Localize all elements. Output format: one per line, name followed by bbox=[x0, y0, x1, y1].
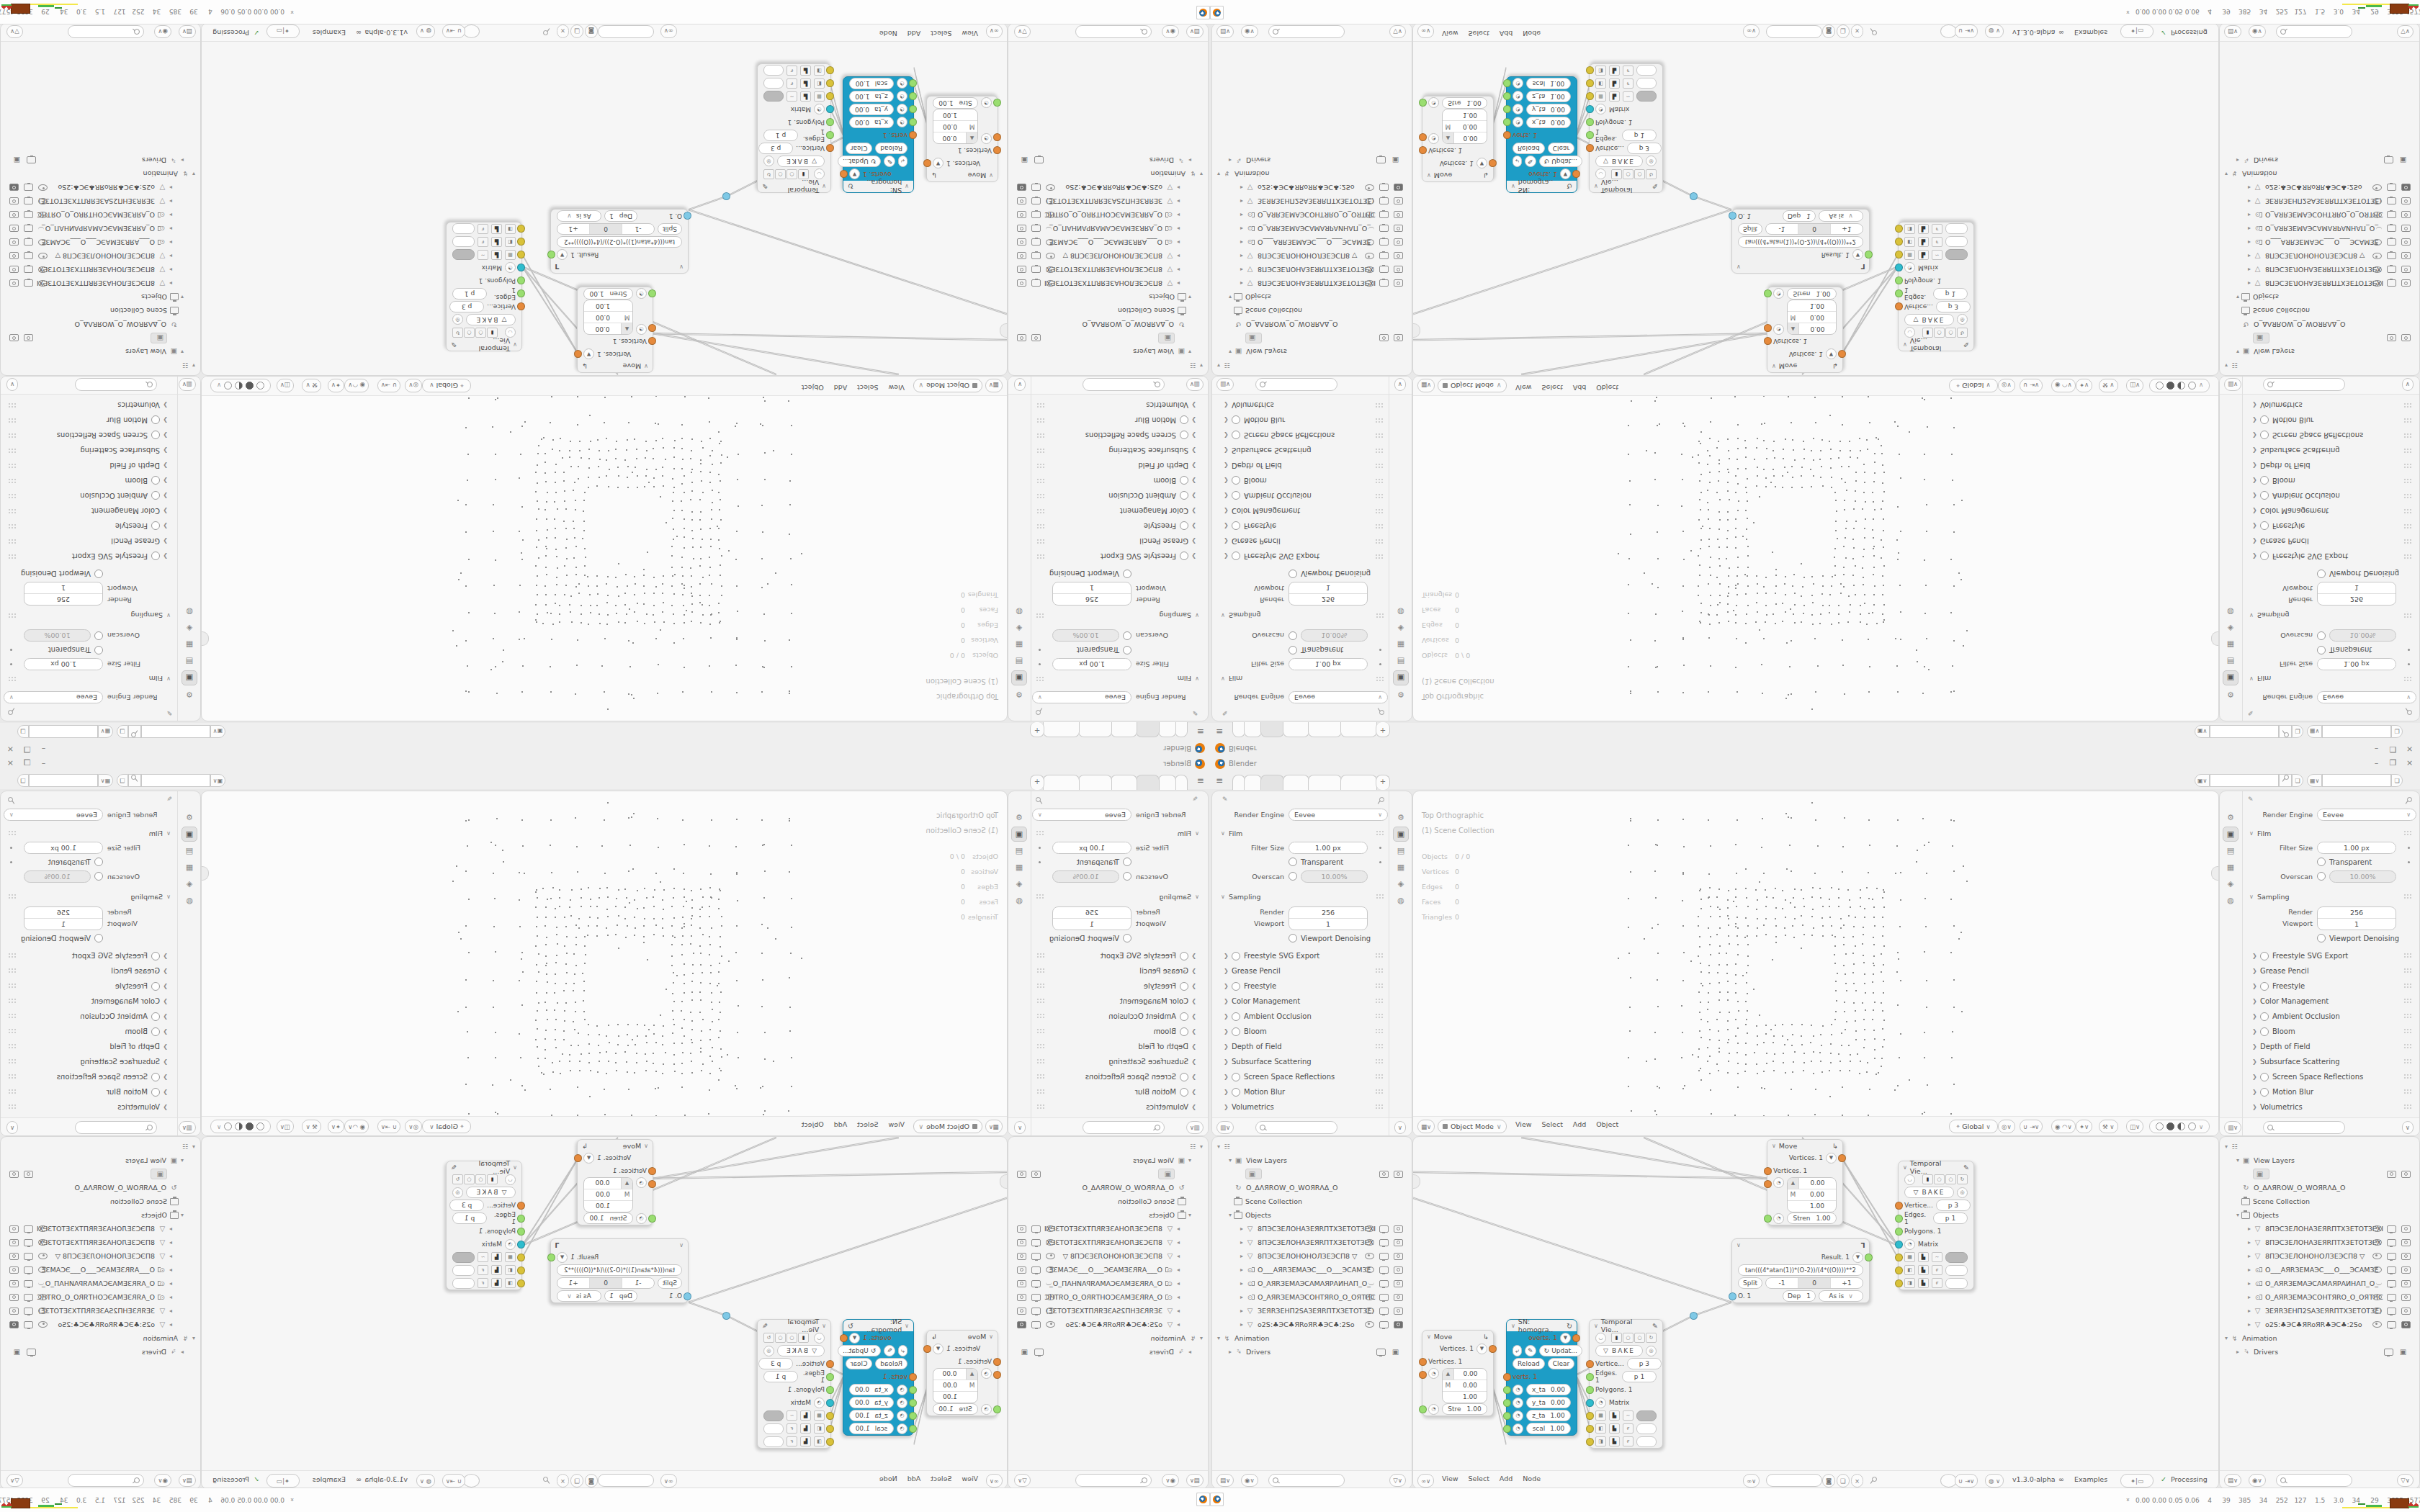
outliner-row[interactable]: Scene Collection bbox=[4, 304, 197, 318]
render-visibility-icon[interactable] bbox=[1017, 212, 1026, 219]
viewport-visibility-icon[interactable] bbox=[2387, 266, 2396, 274]
scene-icon[interactable]: ◈ bbox=[1393, 876, 1409, 891]
viewport-visibility-icon[interactable] bbox=[1379, 1239, 1389, 1246]
menu-item[interactable]: Add bbox=[907, 30, 920, 37]
text-field[interactable] bbox=[1945, 1265, 1968, 1276]
sampling-fields[interactable]: 256 1 bbox=[1289, 906, 1368, 930]
mode-dropdown[interactable]: Object Mode∨ bbox=[913, 1120, 982, 1133]
outliner-row[interactable]: ▸O_АЯRЗЕМАЭСАМАЯРАИНАП_O_ bbox=[1011, 1277, 1205, 1290]
property-section[interactable]: ❯Depth of Field bbox=[1029, 458, 1205, 473]
property-section[interactable]: ❯Grease Pencil bbox=[1215, 963, 1391, 978]
search-field[interactable] bbox=[1075, 25, 1152, 38]
property-section[interactable]: ❯Ambient Occlusion bbox=[1029, 488, 1205, 503]
minimize-button[interactable]: – bbox=[2372, 758, 2381, 768]
viewport-3d[interactable]: Top Orthographic (1) Scene Collection Ob… bbox=[1412, 376, 2219, 721]
search-field[interactable] bbox=[2276, 1474, 2352, 1487]
outliner-row[interactable]: ▸O___АЯRЗЕМАЭС___O___ЭСАМЗЕ bbox=[2223, 235, 2416, 249]
render-visibility-icon[interactable] bbox=[2401, 266, 2411, 274]
overscan-checkbox[interactable] bbox=[1289, 631, 1297, 640]
render-engine-dropdown[interactable]: Eevee∨ bbox=[1032, 809, 1131, 821]
render-engine-dropdown[interactable]: Eevee∨ bbox=[1289, 809, 1388, 821]
outliner-row[interactable]: ▸ЗЕЯRЗЕНП2SАЗЕЯRПТХЗЕТОТЗЕ) bbox=[1215, 194, 1409, 208]
node-formula[interactable]: ∨⅂ Result. 1▼ tan(((4*atan(1))*(O-2))/(4… bbox=[1731, 209, 1870, 274]
hide-eye-icon[interactable] bbox=[2372, 280, 2382, 287]
node-sn-homography[interactable]: ∨SN: homogra..↻ overts. 1▼ ⤶✎ ↻Updat... … bbox=[843, 76, 914, 193]
filter-size-field[interactable]: 1.00 px bbox=[24, 659, 103, 671]
examples-menu[interactable]: Examples bbox=[313, 1475, 346, 1483]
property-section[interactable]: ❯Depth of Field bbox=[1029, 1039, 1205, 1054]
render-icon[interactable]: ▣ bbox=[1393, 827, 1409, 842]
filter-visibility-icon[interactable]: ◉∨ bbox=[1162, 1474, 1179, 1487]
outliner-row[interactable]: ▾ bbox=[1011, 1140, 1205, 1153]
output-icon[interactable]: ▤ bbox=[181, 654, 197, 669]
property-section[interactable]: ❯Color Management bbox=[1215, 503, 1391, 518]
hide-eye-icon[interactable] bbox=[38, 184, 48, 191]
overlay-dropdown[interactable]: ◍ ∨ bbox=[416, 24, 435, 38]
workspace-tab[interactable] bbox=[1158, 775, 1176, 790]
viewport-denoising-checkbox[interactable] bbox=[1289, 934, 1297, 942]
property-section[interactable]: ❯Freestyle SVG Export bbox=[1215, 549, 1391, 564]
hide-eye-icon[interactable] bbox=[38, 1239, 48, 1246]
overscan-field[interactable]: 10.00% bbox=[1052, 630, 1119, 642]
node-move-upper[interactable]: ∨Move↳ Vertices. 1▼ Vertices. 1 ◔ ▲0.00 … bbox=[577, 1139, 653, 1225]
filter-visibility-icon[interactable]: ◉∨ bbox=[154, 25, 171, 38]
orientation-dropdown[interactable]: ⌖ Global∨ bbox=[1949, 379, 1998, 392]
new-viewlayer-button[interactable]: ❏ bbox=[17, 725, 28, 738]
outliner-row[interactable]: ▾View Layers bbox=[2223, 345, 2416, 359]
workspace-tab[interactable] bbox=[1043, 722, 1080, 737]
viewport-visibility-icon[interactable] bbox=[24, 198, 33, 205]
gizmo-dropdown[interactable]: ✦∨ bbox=[2076, 379, 2092, 392]
property-section[interactable]: ❯Depth of Field bbox=[2244, 458, 2419, 473]
property-section[interactable]: ❯Freestyle bbox=[1, 518, 176, 534]
outliner-row[interactable]: ▸8ПЭСЗЕЛОНАЗЕЯRПТХЗЕТОТЗЕХ bbox=[4, 263, 197, 276]
pin-icon[interactable] bbox=[1870, 1476, 1877, 1483]
outliner-row[interactable]: Scene Collection bbox=[2223, 1194, 2416, 1208]
snap-group[interactable]: ∪ ⇥∨ bbox=[377, 1120, 400, 1133]
viewlayer-icon[interactable]: ▦ bbox=[2223, 860, 2238, 875]
property-section[interactable]: ❯Freestyle SVG Export bbox=[1029, 948, 1205, 963]
node-tree-field[interactable] bbox=[598, 1474, 654, 1487]
bake-button[interactable]: ▽BAKE bbox=[1904, 1187, 1954, 1198]
xray-toggle[interactable]: ◫∨ bbox=[2126, 1120, 2143, 1133]
outliner-row[interactable]: ▸O_АЯRЗЕМАЭСОНТЯRО_O_ОЯТНС bbox=[2223, 208, 2416, 222]
outliner-row[interactable]: ▸ЗЕЯRЗЕНП2SАЗЕЯRПТХЗЕТОТЗЕ) bbox=[1215, 1304, 1409, 1318]
restore-button[interactable]: ❐ bbox=[22, 758, 32, 768]
viewport-visibility-icon[interactable] bbox=[1031, 1308, 1041, 1315]
outliner-row[interactable]: O_ΔΛЯROW_O_WOЯRΛΔ_O bbox=[2223, 1181, 2416, 1194]
overscan-field[interactable]: 10.00% bbox=[24, 630, 91, 642]
outliner-row[interactable]: ▸Drivers▣ bbox=[4, 1345, 197, 1359]
filter-size-field[interactable]: 1.00 px bbox=[1289, 842, 1368, 854]
hide-eye-icon[interactable] bbox=[2372, 212, 2382, 218]
shading-mode-group[interactable]: ∨ bbox=[210, 379, 271, 392]
render-visibility-icon[interactable] bbox=[2401, 1294, 2411, 1301]
viewport-denoising-checkbox[interactable] bbox=[1123, 934, 1131, 942]
outliner-row[interactable]: ▸ЗЕЯRЗЕНП2SАЗЕЯRПТХЗЕТОТЗЕ) bbox=[1011, 1304, 1205, 1318]
output-icon[interactable]: ▤ bbox=[1393, 654, 1409, 669]
render-visibility-icon[interactable] bbox=[9, 253, 19, 260]
node-temporal-viewer-right[interactable]: ∨Temporal Vie...✎ ◡ ▮○ ○↻ ▽BAKE ◎ Vertic… bbox=[446, 1161, 522, 1290]
outliner-row[interactable]: ▸8ПЭСЗЕЛОНОНОЛЗЕЭСП8 ▽ bbox=[4, 1249, 197, 1263]
add-workspace-button[interactable]: + bbox=[1030, 722, 1044, 737]
menu-item[interactable]: Object bbox=[1596, 1120, 1618, 1128]
overscan-checkbox[interactable] bbox=[94, 872, 103, 881]
hide-eye-icon[interactable] bbox=[1046, 1308, 1055, 1314]
update-indicator[interactable] bbox=[463, 24, 480, 38]
value-field[interactable]: y_ta0.00 bbox=[849, 104, 894, 115]
outliner-row[interactable] bbox=[1011, 1167, 1205, 1181]
property-section[interactable]: ❯Screen Space Reflections bbox=[1029, 1069, 1205, 1084]
copy-tree-button[interactable]: ❏ bbox=[1837, 24, 1850, 38]
menu-item[interactable]: Select bbox=[1469, 30, 1489, 37]
property-section[interactable]: ❯Screen Space Reflections bbox=[2244, 428, 2419, 443]
outliner-row[interactable]: ▸O___АЯRЗЕМАЭС___O___ЭСАМЗЕ bbox=[1011, 235, 1205, 249]
outliner-row[interactable]: ▸O___АЯRЗЕМАЭС___O___ЭСАМЗЕ bbox=[4, 1263, 197, 1277]
filter-funnel-icon[interactable]: ▽∨ bbox=[1014, 25, 1031, 38]
hide-eye-icon[interactable] bbox=[1365, 1321, 1374, 1328]
menu-item[interactable]: Add bbox=[834, 1120, 847, 1128]
outliner-row[interactable]: ▾View Layers bbox=[4, 1153, 197, 1167]
tools-group[interactable]: ✦|▭ bbox=[266, 1474, 300, 1488]
filter-size-field[interactable]: 1.00 px bbox=[24, 842, 103, 854]
text-field[interactable] bbox=[1945, 1278, 1968, 1289]
viewport-visibility-icon[interactable] bbox=[1379, 1294, 1389, 1301]
tool-icon[interactable]: ⚙ bbox=[2223, 810, 2238, 825]
world-icon[interactable]: ◍ bbox=[2223, 893, 2238, 908]
tool-icon[interactable]: ⚙ bbox=[1393, 810, 1409, 825]
scene-icon[interactable]: ▣∨ bbox=[210, 725, 225, 738]
node-formula[interactable]: ∨⅂ Result. 1▼ tan(((4*atan(1))*(O-2))/(4… bbox=[550, 1238, 689, 1303]
value-field[interactable]: y_ta0.00 bbox=[1526, 104, 1571, 115]
menu-item[interactable]: View bbox=[962, 1475, 978, 1482]
menu-item[interactable]: Select bbox=[1542, 1120, 1563, 1128]
menu-item[interactable]: Node bbox=[879, 30, 897, 37]
outliner-row[interactable]: ▾ bbox=[1215, 1140, 1409, 1153]
render-visibility-icon[interactable] bbox=[2401, 1308, 2411, 1315]
filter-funnel-icon[interactable]: ▽∨ bbox=[6, 25, 23, 38]
property-section[interactable]: ❯Grease Pencil bbox=[1, 963, 176, 978]
overlay-dropdown[interactable]: ◍ ∨ bbox=[1985, 1474, 2004, 1488]
viewport-visibility-icon[interactable] bbox=[1034, 157, 1044, 164]
pin-icon[interactable] bbox=[8, 796, 15, 804]
hide-eye-icon[interactable] bbox=[1365, 184, 1374, 191]
transparent-checkbox[interactable] bbox=[1123, 646, 1131, 654]
viewport-visibility-icon[interactable] bbox=[1379, 1280, 1389, 1287]
property-section[interactable]: ❯Bloom bbox=[1029, 1024, 1205, 1039]
search-field[interactable] bbox=[1255, 378, 1337, 391]
render-visibility-icon[interactable] bbox=[9, 1321, 19, 1328]
render-visibility-icon[interactable] bbox=[9, 198, 19, 205]
menu-item[interactable]: Object bbox=[802, 384, 824, 392]
options-button[interactable]: ∨ bbox=[6, 378, 18, 391]
node-move-upper[interactable]: ∨Move↳ Vertices. 1▼ Vertices. 1 ◔ ▲0.00 … bbox=[577, 287, 653, 373]
new-scene-button[interactable]: ❏ bbox=[117, 725, 127, 738]
node-temporal-viewer-left[interactable]: ∨Temporal Vie...✎ ◡ ▮○ ○↻ ▽BAKE ◎ Vertic… bbox=[757, 63, 831, 193]
bake-button[interactable]: ▽BAKE bbox=[466, 1187, 516, 1198]
pin-icon[interactable] bbox=[128, 725, 141, 738]
render-visibility-icon[interactable] bbox=[1394, 212, 1403, 219]
render-visibility-icon[interactable] bbox=[9, 1253, 19, 1260]
new-scene-button[interactable]: ❏ bbox=[117, 774, 127, 787]
outliner-row[interactable] bbox=[1215, 331, 1409, 345]
render-visibility-icon[interactable] bbox=[1394, 239, 1403, 246]
outliner-row[interactable]: O_ΔΛЯROW_O_WOЯRΛΔ_O bbox=[1011, 1181, 1205, 1194]
reroute-node[interactable] bbox=[722, 1312, 730, 1320]
outliner-row[interactable]: ▸8ПЭСЗЕЛОНОНОЛЗЕЭСП8 ▽ bbox=[1215, 249, 1409, 263]
viewport-visibility-icon[interactable] bbox=[1379, 266, 1389, 274]
minimize-button[interactable]: – bbox=[39, 758, 48, 768]
filter-visibility-icon[interactable]: ◉∨ bbox=[1241, 1474, 1258, 1487]
scene-icon[interactable]: ◈ bbox=[2223, 621, 2238, 636]
workspace-tab[interactable] bbox=[1340, 775, 1377, 790]
outliner-row[interactable]: ▾Animation bbox=[1011, 1331, 1205, 1345]
search-field[interactable] bbox=[1268, 1474, 1345, 1487]
filter-size-field[interactable]: 1.00 px bbox=[1052, 659, 1131, 671]
outliner-row[interactable]: ▸o2S:♣ЭС♣ЯRoЯR♣ЭС♣:2So bbox=[1011, 181, 1205, 194]
render-visibility-icon[interactable] bbox=[1017, 1308, 1026, 1315]
node-move-left[interactable]: ∨Move↳ Vertices. 1▼ Vertices. 1 ◔ ▲0.00 … bbox=[926, 1330, 998, 1416]
menu-icon[interactable]: ≡ bbox=[1197, 726, 1204, 737]
editor-type-icon[interactable]: ▦∨ bbox=[1417, 1120, 1435, 1133]
render-engine-dropdown[interactable]: Eevee∨ bbox=[2317, 692, 2416, 704]
pin-icon[interactable] bbox=[2405, 796, 2412, 804]
world-icon[interactable]: ◍ bbox=[181, 604, 197, 619]
render-visibility-icon[interactable] bbox=[1017, 239, 1026, 246]
gizmo-dropdown[interactable]: ✦∨ bbox=[328, 379, 344, 392]
sampling-fields[interactable]: 256 1 bbox=[24, 906, 103, 930]
menu-item[interactable]: View bbox=[888, 384, 905, 392]
render-visibility-icon[interactable] bbox=[9, 1266, 19, 1274]
hide-eye-icon[interactable] bbox=[2372, 1239, 2382, 1246]
render-visibility-icon[interactable] bbox=[24, 335, 33, 342]
property-section[interactable]: ❯Freestyle bbox=[2244, 518, 2419, 534]
output-icon[interactable]: ▤ bbox=[181, 843, 197, 858]
outliner-row[interactable]: ▾Objects bbox=[1215, 1208, 1409, 1222]
workspace-tab[interactable] bbox=[1340, 722, 1377, 737]
outliner-row[interactable]: ▾Objects bbox=[1011, 290, 1205, 304]
property-section[interactable]: ❯Subsurface Scattering bbox=[1029, 443, 1205, 458]
editor-type-icon[interactable]: ▥∨ bbox=[1186, 1121, 1204, 1134]
property-section[interactable]: ❯Grease Pencil bbox=[2244, 534, 2419, 549]
render-visibility-icon[interactable] bbox=[2401, 225, 2411, 233]
search-field[interactable] bbox=[2263, 1121, 2345, 1134]
outliner-row[interactable]: Scene Collection bbox=[1215, 1194, 1409, 1208]
scene-icon[interactable]: ◈ bbox=[181, 621, 197, 636]
property-section[interactable]: ❯Motion Blur bbox=[2244, 1084, 2419, 1099]
render-visibility-icon[interactable] bbox=[1394, 1266, 1403, 1274]
outliner-row[interactable]: ▸ЗЕЯRЗЕНП2SАЗЕЯRПТХЗЕТОТЗЕ) bbox=[2223, 1304, 2416, 1318]
node-formula[interactable]: ∨⅂ Result. 1▼ tan(((4*atan(1))*(O-2))/(4… bbox=[550, 209, 689, 274]
render-visibility-icon[interactable] bbox=[9, 1280, 19, 1287]
render-visibility-icon[interactable] bbox=[1017, 280, 1026, 287]
hide-eye-icon[interactable] bbox=[38, 253, 48, 259]
text-field[interactable] bbox=[452, 224, 475, 235]
viewport-visibility-icon[interactable] bbox=[24, 266, 33, 274]
viewport-visibility-icon[interactable] bbox=[27, 1349, 36, 1356]
film-section-header[interactable]: ∨Film bbox=[1178, 827, 1199, 839]
hide-eye-icon[interactable] bbox=[38, 1294, 48, 1300]
property-section[interactable]: ❯Motion Blur bbox=[1029, 1084, 1205, 1099]
property-section[interactable]: ❯Subsurface Scattering bbox=[1215, 443, 1391, 458]
render-visibility-icon[interactable] bbox=[2401, 1225, 2411, 1233]
render-visibility-icon[interactable] bbox=[1394, 1321, 1403, 1328]
outliner-row[interactable]: ▸Drivers▣ bbox=[2223, 153, 2416, 167]
outliner-row[interactable]: ▸ЗЕЯRЗЕНП2SАЗЕЯRПТХЗЕТОТЗЕ) bbox=[4, 194, 197, 208]
node-move-upper[interactable]: ∨Move↳ Vertices. 1▼ Vertices. 1 ◔ ▲0.00 … bbox=[1767, 287, 1843, 373]
outliner-row[interactable]: ▸O_АЯRЗЕМАЭСОНТЯRО_O_ОЯТНС bbox=[1215, 1290, 1409, 1304]
new-viewlayer-button[interactable]: ❏ bbox=[2391, 774, 2402, 787]
outliner-row[interactable]: O_ΔΛЯROW_O_WOЯRΛΔ_O bbox=[4, 1181, 197, 1194]
hide-eye-icon[interactable] bbox=[38, 1308, 48, 1314]
overscan-checkbox[interactable] bbox=[1123, 872, 1131, 881]
unlink-button[interactable]: × bbox=[1851, 1474, 1863, 1488]
node-move-upper[interactable]: ∨Move↳ Vertices. 1▼ Vertices. 1 ◔ ▲0.00 … bbox=[1767, 1139, 1843, 1225]
node-temporal-viewer-left[interactable]: ∨Temporal Vie...✎ ◡ ▮○ ○↻ ▽BAKE ◎ Vertic… bbox=[757, 1319, 831, 1449]
fake-user-button[interactable]: ◙ bbox=[1822, 1474, 1835, 1488]
property-section[interactable]: ❯Depth of Field bbox=[1215, 458, 1391, 473]
viewport-visibility-icon[interactable] bbox=[2387, 1294, 2396, 1301]
outliner-row[interactable]: ▸O_АЯRЗЕМАЭСАМАЯРАИНАП_O_ bbox=[4, 1277, 197, 1290]
tool-icon[interactable]: ⚙ bbox=[1393, 687, 1409, 702]
add-workspace-button[interactable]: + bbox=[1376, 722, 1390, 737]
property-section[interactable]: ❯Volumetrics bbox=[2244, 1099, 2419, 1115]
property-section[interactable]: ❯Volumetrics bbox=[1, 1099, 176, 1115]
closed-eye-icon[interactable] bbox=[1368, 227, 1374, 230]
render-visibility-icon[interactable] bbox=[9, 1294, 19, 1301]
restore-button[interactable]: ❐ bbox=[2388, 744, 2398, 754]
node-tree-field[interactable] bbox=[598, 25, 654, 38]
hide-eye-icon[interactable] bbox=[38, 1253, 48, 1259]
property-section[interactable]: ❯Color Management bbox=[2244, 994, 2419, 1009]
hide-eye-icon[interactable] bbox=[38, 198, 48, 204]
property-section[interactable]: ❯Freestyle bbox=[1, 978, 176, 994]
add-workspace-button[interactable]: + bbox=[1030, 775, 1044, 790]
tree-type-icon[interactable]: ∞∨ bbox=[660, 1474, 677, 1488]
editor-type-icon[interactable]: ∞∨ bbox=[1417, 1474, 1434, 1488]
outliner-row[interactable]: ▸O_АЯRЗЕМАЭСОНТЯRО_O_ОЯТНС bbox=[1011, 1290, 1205, 1304]
outliner-row[interactable]: ▸O___АЯRЗЕМАЭС___O___ЭСАМЗЕ bbox=[1215, 235, 1409, 249]
text-field[interactable] bbox=[452, 1265, 475, 1276]
render-visibility-icon[interactable] bbox=[2401, 184, 2411, 192]
menu-item[interactable]: Node bbox=[1523, 1475, 1541, 1482]
viewport-visibility-icon[interactable] bbox=[1031, 184, 1041, 192]
menu-item[interactable]: Add bbox=[1500, 30, 1512, 37]
viewport-visibility-icon[interactable] bbox=[1031, 1253, 1041, 1260]
search-field[interactable] bbox=[75, 1121, 157, 1134]
workspace-tab[interactable] bbox=[1175, 722, 1188, 737]
transparent-checkbox[interactable] bbox=[1289, 646, 1297, 654]
scene-name-field[interactable] bbox=[2210, 774, 2279, 787]
outliner-row[interactable]: ▸o2S:♣ЭС♣ЯRoЯR♣ЭС♣:2So bbox=[4, 1318, 197, 1331]
render-visibility-icon[interactable] bbox=[1017, 253, 1026, 260]
render-visibility-icon[interactable] bbox=[2401, 1266, 2411, 1274]
render-visibility-icon[interactable] bbox=[1017, 198, 1026, 205]
node-temporal-viewer-left[interactable]: ∨Temporal Vie...✎ ◡ ▮○ ○↻ ▽BAKE ◎ Vertic… bbox=[1589, 1319, 1663, 1449]
property-section[interactable]: ❯Motion Blur bbox=[1, 413, 176, 428]
workspace-tab[interactable] bbox=[1111, 775, 1137, 790]
tool-icon[interactable]: ⚙ bbox=[181, 810, 197, 825]
overscan-field[interactable]: 10.00% bbox=[24, 870, 91, 883]
outliner-row[interactable]: ▸8ПЭСЗЕЛОНОНОЛЗЕЭСП8 ▽ bbox=[1011, 249, 1205, 263]
filter-visibility-icon[interactable]: ◉∨ bbox=[1162, 25, 1179, 38]
hide-eye-icon[interactable] bbox=[38, 1225, 48, 1232]
filter-visibility-icon[interactable]: ◉∨ bbox=[1241, 25, 1258, 38]
outliner-row[interactable]: ▸8ПЭСЗЕЛОНОНОЛЗЕЭСП8 ▽ bbox=[4, 249, 197, 263]
outliner-row[interactable]: ▸O___АЯRЗЕМАЭС___O___ЭСАМЗЕ bbox=[1011, 1263, 1205, 1277]
outliner-row[interactable]: ▾Objects bbox=[2223, 1208, 2416, 1222]
hide-eye-icon[interactable] bbox=[1046, 253, 1055, 259]
viewlayer-name-field[interactable] bbox=[2322, 774, 2391, 787]
workspace-tab[interactable] bbox=[1136, 775, 1160, 790]
display-mode-icon[interactable]: ▤∨ bbox=[2224, 1474, 2241, 1487]
orientation-dropdown[interactable]: ⌖ Global∨ bbox=[422, 379, 471, 392]
viewport-visibility-icon[interactable] bbox=[24, 1294, 33, 1301]
options-button[interactable]: ∨ bbox=[2402, 1121, 2414, 1134]
gizmo-dropdown[interactable]: ✦∨ bbox=[2076, 1120, 2092, 1133]
outliner-row[interactable]: Scene Collection bbox=[2223, 304, 2416, 318]
viewport-visibility-icon[interactable] bbox=[2387, 198, 2396, 205]
close-button[interactable]: × bbox=[2405, 758, 2414, 768]
overscan-field[interactable]: 10.00% bbox=[2329, 630, 2396, 642]
outliner-row[interactable]: ▸8ПЭСЗЕЛОНАЗЕЯRПТХЗЕТОТЗЕХ bbox=[1215, 1236, 1409, 1249]
viewlayer-icon[interactable]: ▦∨ bbox=[2307, 774, 2322, 787]
hide-eye-icon[interactable] bbox=[1365, 1266, 1374, 1273]
property-section[interactable]: ❯Color Management bbox=[1, 994, 176, 1009]
property-section[interactable]: ❯Grease Pencil bbox=[1029, 963, 1205, 978]
outliner-row[interactable]: ▸O_АЯRЗЕМАЭСОНТЯRО_O_ОЯТНС bbox=[2223, 1290, 2416, 1304]
render-visibility-icon[interactable] bbox=[1394, 1253, 1403, 1260]
tree-type-icon[interactable]: ∞∨ bbox=[1743, 1474, 1760, 1488]
viewport-visibility-icon[interactable] bbox=[1031, 280, 1041, 287]
film-section-header[interactable]: ∨Film bbox=[2249, 673, 2271, 685]
bake-button[interactable]: ▽BAKE bbox=[777, 156, 825, 167]
workspace-tab[interactable] bbox=[1244, 722, 1262, 737]
outliner-row[interactable]: ▸O_АЯRЗЕМАЭСАМАЯРАИНАП_O_ bbox=[1011, 222, 1205, 235]
render-visibility-icon[interactable] bbox=[1394, 1308, 1403, 1315]
node-tree-field[interactable] bbox=[1766, 1474, 1822, 1487]
tree-type-icon[interactable]: ∞∨ bbox=[1743, 24, 1760, 38]
outliner-row[interactable]: ▸8ПЭСЗЕЛОНАЗЕЯRПТХЗЕТОТЗЕХ bbox=[1011, 263, 1205, 276]
viewport-visibility-icon[interactable] bbox=[1031, 253, 1041, 260]
viewlayer-icon[interactable]: ▦ bbox=[1011, 637, 1027, 652]
render-visibility-icon[interactable] bbox=[2401, 280, 2411, 287]
property-section[interactable]: ❯Ambient Occlusion bbox=[2244, 1009, 2419, 1024]
sampling-fields[interactable]: 256 1 bbox=[1052, 906, 1131, 930]
hide-eye-icon[interactable] bbox=[2372, 1308, 2382, 1314]
hide-eye-icon[interactable] bbox=[2372, 1253, 2382, 1259]
outliner-row[interactable]: ▸Drivers▣ bbox=[4, 153, 197, 167]
orientation-dropdown[interactable]: ⌖ Global∨ bbox=[422, 1120, 471, 1133]
sampling-fields[interactable]: 256 1 bbox=[2317, 582, 2396, 606]
render-visibility-icon[interactable] bbox=[9, 239, 19, 246]
scene-icon[interactable]: ◈ bbox=[1393, 621, 1409, 636]
sidebar-toggle-handle[interactable] bbox=[202, 866, 209, 881]
proportional-edit-group[interactable]: ◉ ◠∨ bbox=[344, 1120, 369, 1133]
editor-type-icon[interactable]: ∞∨ bbox=[1417, 24, 1434, 38]
viewport-visibility-icon[interactable] bbox=[2387, 1239, 2396, 1246]
viewport-visibility-icon[interactable] bbox=[2387, 1253, 2396, 1260]
workspace-tab[interactable] bbox=[1308, 775, 1342, 790]
property-section[interactable]: ❯Freestyle bbox=[2244, 978, 2419, 994]
outliner-row[interactable]: ▸Drivers▣ bbox=[1011, 1345, 1205, 1359]
sampling-section-header[interactable]: ∨Sampling bbox=[1221, 891, 1260, 902]
overlays-dropdown[interactable]: ⚒ ∨ bbox=[2099, 379, 2118, 392]
outliner-row[interactable]: ▸O___АЯRЗЕМАЭС___O___ЭСАМЗЕ bbox=[4, 235, 197, 249]
render-visibility-icon[interactable] bbox=[2401, 1280, 2411, 1287]
overscan-checkbox[interactable] bbox=[1289, 872, 1297, 881]
render-engine-dropdown[interactable]: Eevee∨ bbox=[4, 809, 103, 821]
